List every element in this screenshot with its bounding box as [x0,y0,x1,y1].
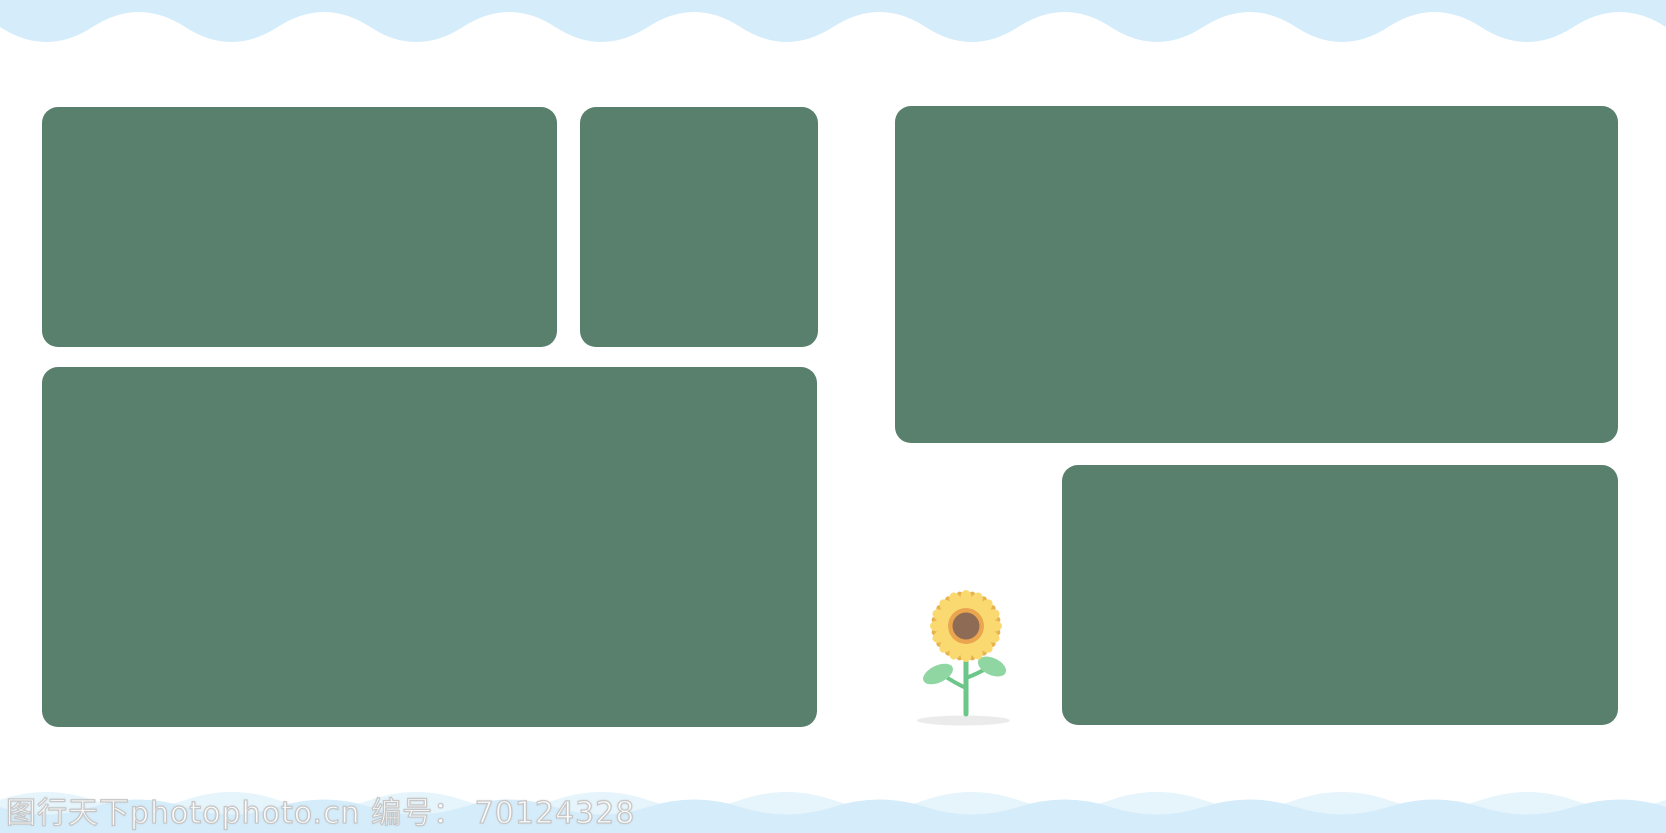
watermark-text: 图行天下photophoto.cn 编号： 70124328 [6,788,635,832]
template-canvas: 图行天下photophoto.cn 编号： 70124328 [0,0,1666,833]
photo-placeholder-panel [42,367,817,727]
photo-placeholder-panel [895,106,1618,443]
photo-placeholder-panel [1062,465,1618,725]
top-wave-shape [0,0,1666,42]
photo-placeholder-panel [580,107,818,347]
top-wave-border [0,0,1666,60]
photo-placeholder-panel [42,107,557,347]
flower-shadow [917,716,1010,726]
sunflower-icon [895,570,1040,730]
flower-center [953,613,980,640]
leaf-left [920,660,956,689]
